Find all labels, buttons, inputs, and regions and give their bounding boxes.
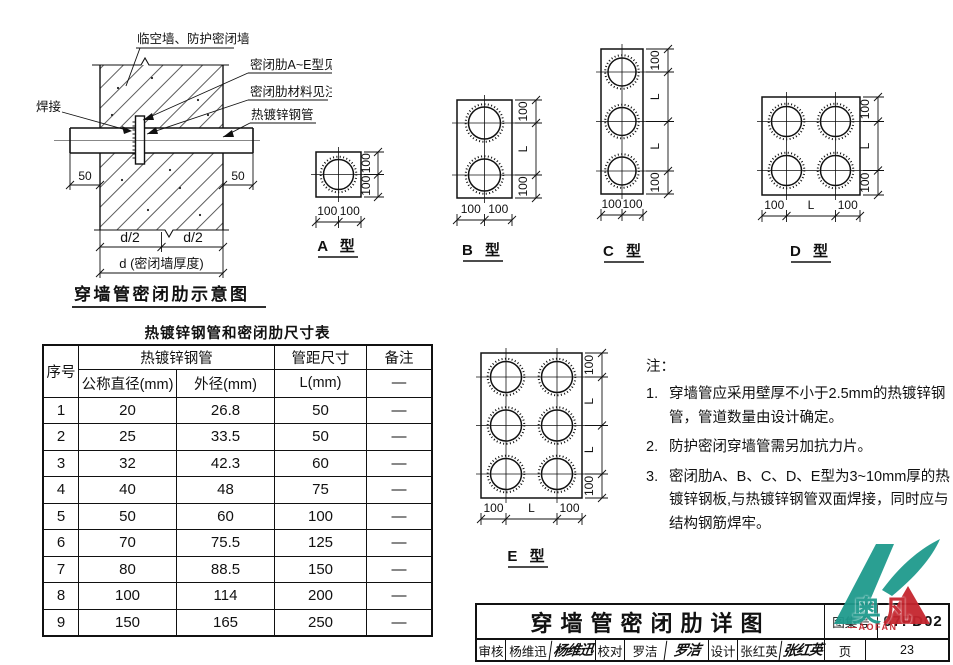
table-cell: 9 bbox=[43, 609, 79, 636]
table-cell: 1 bbox=[43, 397, 79, 424]
table-cell: 2 bbox=[43, 424, 79, 451]
type-b-label: B 型 bbox=[462, 241, 504, 259]
table-cell: 100 bbox=[275, 503, 367, 530]
dim-label: 100 bbox=[648, 172, 662, 192]
table-cell: 33.5 bbox=[177, 424, 275, 451]
dim-50-left: 50 bbox=[78, 169, 92, 183]
table-cell: — bbox=[367, 556, 433, 583]
table-cell: 6 bbox=[43, 530, 79, 557]
type-a-label: A 型 bbox=[317, 237, 358, 255]
drawing-sheet: 临空墙、防护密闭墙 焊接 密闭肋A~E型见图 密闭肋材料见注3 热镀锌钢管 50… bbox=[0, 0, 953, 665]
dim-label: 100 bbox=[582, 476, 596, 496]
table-cell: 250 bbox=[275, 609, 367, 636]
dim-label: 100 bbox=[622, 197, 642, 211]
rib-type-label: 密闭肋A~E型见图 bbox=[250, 57, 332, 72]
col-header-remark-dash: — bbox=[367, 369, 433, 397]
dim-label: 100 bbox=[559, 501, 579, 515]
review-name: 杨维迅 bbox=[505, 640, 550, 660]
schematic-title: 穿墙管密闭肋示意图 bbox=[74, 284, 250, 304]
notes-heading: 注： bbox=[646, 356, 950, 379]
dim-label: 100 bbox=[582, 355, 596, 375]
table-cell: 150 bbox=[275, 556, 367, 583]
table-cell: 70 bbox=[79, 530, 177, 557]
table-cell: — bbox=[367, 397, 433, 424]
table-cell: 4 bbox=[43, 477, 79, 504]
dim-label: L bbox=[516, 145, 530, 152]
table-row: 67075.5125— bbox=[43, 530, 432, 557]
table-cell: 3 bbox=[43, 450, 79, 477]
dim-50-right: 50 bbox=[231, 169, 245, 183]
note-text: 密闭肋A、B、C、D、E型为3~10mm厚的热镀锌钢板,与热镀锌钢管双面焊接，同… bbox=[669, 466, 950, 536]
table-cell: — bbox=[367, 530, 433, 557]
dim-label: L bbox=[648, 93, 662, 100]
watermark-logo: 奥凡 —AOFAN bbox=[826, 536, 953, 640]
dim-label: 100 bbox=[858, 99, 872, 119]
table-cell: — bbox=[367, 424, 433, 451]
dim-d2-right: d/2 bbox=[183, 229, 203, 245]
dim-label: 100 bbox=[516, 176, 530, 196]
table-cell: 50 bbox=[275, 397, 367, 424]
note-number: 3. bbox=[646, 466, 662, 536]
table-row: 12026.850— bbox=[43, 397, 432, 424]
design-label: 设计 bbox=[708, 640, 737, 660]
dim-label: 100 bbox=[483, 501, 503, 515]
table-row: 55060100— bbox=[43, 503, 432, 530]
table-row: 9150165250— bbox=[43, 609, 432, 636]
dim-label: L bbox=[808, 198, 815, 212]
dim-label: 100 bbox=[838, 198, 858, 212]
dim-label: 100 bbox=[359, 153, 373, 173]
note-text: 防护密闭穿墙管需另加抗力片。 bbox=[669, 436, 872, 459]
table-cell: — bbox=[367, 450, 433, 477]
notes-block: 注： 1.穿墙管应采用壁厚不小于2.5mm的热镀锌钢管，管道数量由设计确定。2.… bbox=[646, 356, 950, 542]
note-number: 2. bbox=[646, 436, 662, 459]
table-cell: 114 bbox=[177, 583, 275, 610]
note-text: 穿墙管应采用壁厚不小于2.5mm的热镀锌钢管，管道数量由设计确定。 bbox=[669, 383, 950, 430]
table-cell: 165 bbox=[177, 609, 275, 636]
design-signature: 张红英 bbox=[778, 639, 825, 661]
table-cell: 75 bbox=[275, 477, 367, 504]
brand-subtext: —AOFAN bbox=[848, 622, 898, 632]
table-row: 8100114200— bbox=[43, 583, 432, 610]
type-e-label: E 型 bbox=[507, 547, 548, 565]
col-header-seq: 序号 bbox=[43, 345, 79, 397]
table-row: 22533.550— bbox=[43, 424, 432, 451]
note-number: 1. bbox=[646, 383, 662, 430]
table-cell: 200 bbox=[275, 583, 367, 610]
dim-label: L bbox=[858, 142, 872, 149]
note-item: 3.密闭肋A、B、C、D、E型为3~10mm厚的热镀锌钢板,与热镀锌钢管双面焊接… bbox=[646, 466, 950, 536]
dim-d-label: d (密闭墙厚度) bbox=[119, 256, 204, 271]
weld-label: 焊接 bbox=[36, 99, 62, 114]
table-cell: 88.5 bbox=[177, 556, 275, 583]
dim-d2-left: d/2 bbox=[120, 229, 140, 245]
table-cell: 8 bbox=[43, 583, 79, 610]
type-d-figure: 100 L 100 100 L 100 D 型 bbox=[745, 88, 950, 268]
table-cell: — bbox=[367, 583, 433, 610]
dim-label: 100 bbox=[317, 204, 337, 218]
note-item: 2.防护密闭穿墙管需另加抗力片。 bbox=[646, 436, 950, 459]
table-cell: 26.8 bbox=[177, 397, 275, 424]
dim-label: 100 bbox=[461, 202, 481, 216]
table-cell: 50 bbox=[275, 424, 367, 451]
page-label: 页 bbox=[824, 640, 865, 660]
col-group-pipe: 热镀锌钢管 bbox=[79, 345, 275, 369]
type-b-figure: 100 100 100 L 100 B 型 bbox=[443, 38, 568, 273]
dimension-table: 序号 热镀锌钢管 管距尺寸 备注 公称直径(mm) 外径(mm) L(mm) —… bbox=[42, 344, 433, 637]
col-header-nominal: 公称直径(mm) bbox=[79, 369, 177, 397]
dim-label: 100 bbox=[359, 175, 373, 195]
table-cell: 5 bbox=[43, 503, 79, 530]
col-header-L: L(mm) bbox=[275, 369, 367, 397]
type-e-figure: 100 L 100 100 L L 100 E 型 bbox=[465, 335, 625, 575]
type-c-figure: 100 100 100 L L 100 C 型 bbox=[588, 30, 713, 275]
dim-label: 100 bbox=[488, 202, 508, 216]
table-cell: 100 bbox=[79, 583, 177, 610]
schematic-figure: 临空墙、防护密闭墙 焊接 密闭肋A~E型见图 密闭肋材料见注3 热镀锌钢管 50… bbox=[30, 10, 332, 315]
table-cell: 125 bbox=[275, 530, 367, 557]
col-header-outer: 外径(mm) bbox=[177, 369, 275, 397]
dim-label: 100 bbox=[858, 172, 872, 192]
col-header-remark: 备注 bbox=[367, 345, 433, 369]
type-d-label: D 型 bbox=[790, 242, 832, 260]
table-cell: 80 bbox=[79, 556, 177, 583]
page-number: 23 bbox=[865, 640, 948, 660]
review-signature: 杨维迅 bbox=[548, 639, 596, 661]
dim-label: 100 bbox=[648, 50, 662, 70]
check-name: 罗洁 bbox=[624, 640, 665, 660]
table-cell: 50 bbox=[79, 503, 177, 530]
table-cell: 40 bbox=[79, 477, 177, 504]
table-row: 78088.5150— bbox=[43, 556, 432, 583]
table-cell: 32 bbox=[79, 450, 177, 477]
dim-label: L bbox=[582, 446, 596, 453]
dim-label: L bbox=[528, 501, 535, 515]
col-group-spacing: 管距尺寸 bbox=[275, 345, 367, 369]
sealing-rib-plate bbox=[136, 116, 145, 164]
wall-label: 临空墙、防护密闭墙 bbox=[137, 31, 250, 46]
review-label: 审核 bbox=[477, 640, 505, 660]
check-label: 校对 bbox=[595, 640, 624, 660]
table-cell: 150 bbox=[79, 609, 177, 636]
table-cell: 7 bbox=[43, 556, 79, 583]
dim-label: L bbox=[582, 398, 596, 405]
dim-label: 100 bbox=[516, 101, 530, 121]
table-cell: 75.5 bbox=[177, 530, 275, 557]
table-cell: — bbox=[367, 609, 433, 636]
table-row: 4404875— bbox=[43, 477, 432, 504]
dim-label: 100 bbox=[340, 204, 360, 218]
table-cell: — bbox=[367, 503, 433, 530]
table-cell: 42.3 bbox=[177, 450, 275, 477]
dim-label: 100 bbox=[601, 197, 621, 211]
pipe-label: 热镀锌钢管 bbox=[251, 107, 314, 122]
dim-label: L bbox=[648, 143, 662, 150]
table-cell: 48 bbox=[177, 477, 275, 504]
table-cell: 60 bbox=[177, 503, 275, 530]
dim-label: 100 bbox=[764, 198, 784, 212]
table-title: 热镀锌钢管和密闭肋尺寸表 bbox=[42, 322, 433, 343]
table-cell: — bbox=[367, 477, 433, 504]
design-name: 张红英 bbox=[737, 640, 780, 660]
table-cell: 60 bbox=[275, 450, 367, 477]
drawing-title: 穿墙管密闭肋详图 bbox=[477, 605, 824, 638]
type-a-figure: 100 100 100 100 A 型 bbox=[300, 142, 435, 267]
note-item: 1.穿墙管应采用壁厚不小于2.5mm的热镀锌钢管，管道数量由设计确定。 bbox=[646, 383, 950, 430]
table-row: 33242.360— bbox=[43, 450, 432, 477]
table-cell: 25 bbox=[79, 424, 177, 451]
type-c-label: C 型 bbox=[603, 242, 645, 260]
check-signature: 罗洁 bbox=[663, 639, 709, 660]
table-cell: 20 bbox=[79, 397, 177, 424]
rib-material-label: 密闭肋材料见注3 bbox=[250, 84, 332, 99]
